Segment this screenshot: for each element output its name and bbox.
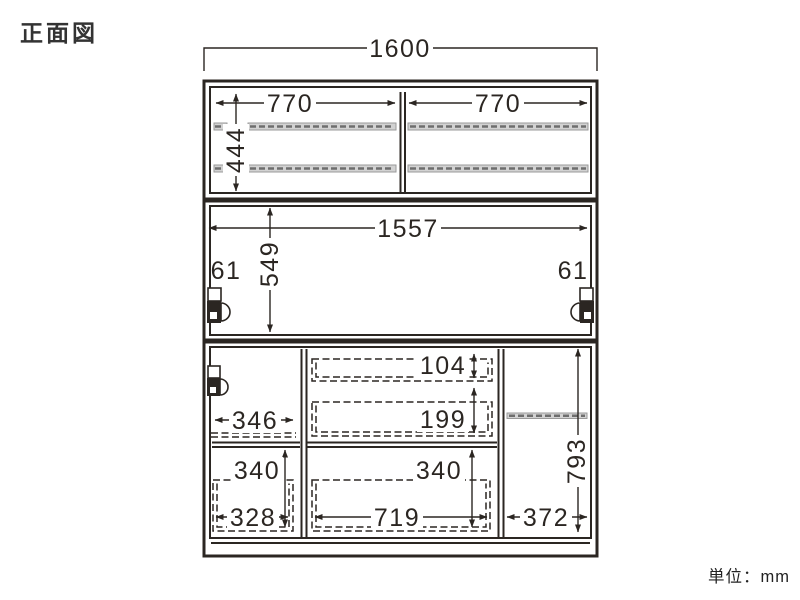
dim-middle-height-label: 549 (256, 241, 284, 287)
dim-upper-drawer-height: 104 (417, 352, 474, 380)
dim-lower-drawer-height-label: 199 (420, 406, 466, 434)
dim-top-right-opening-label: 770 (475, 90, 521, 118)
dim-right-gap-label: 61 (558, 257, 589, 285)
dim-center-drawer-height-label: 340 (416, 457, 462, 485)
dim-left-gap-label: 61 (211, 257, 242, 285)
dim-right-compartment-height-label: 793 (563, 438, 591, 484)
dim-left-drawer-height-label: 340 (234, 457, 280, 485)
dim-left-drawer-width-label: 328 (230, 504, 276, 532)
top-unit (204, 81, 597, 199)
right-compartment-shelf-rail (507, 413, 587, 419)
dim-middle-width-label: 1557 (377, 215, 439, 243)
dim-right-compartment-width-label: 372 (523, 504, 569, 532)
unit-note: 単位：mm (708, 567, 790, 586)
dim-upper-drawer-height-label: 104 (420, 352, 466, 380)
dim-center-drawer-width-label: 719 (374, 504, 420, 532)
dim-overall-width-label: 1600 (369, 35, 431, 63)
front-view-technical-drawing: 正面図 単位：mm (0, 0, 800, 600)
dim-left-compartment-width-label: 346 (232, 407, 278, 435)
page-title: 正面図 (20, 20, 98, 46)
dim-top-height-label: 444 (222, 127, 250, 173)
dim-top-left-opening-label: 770 (267, 90, 313, 118)
dim-overall-width: 1600 (204, 35, 597, 71)
